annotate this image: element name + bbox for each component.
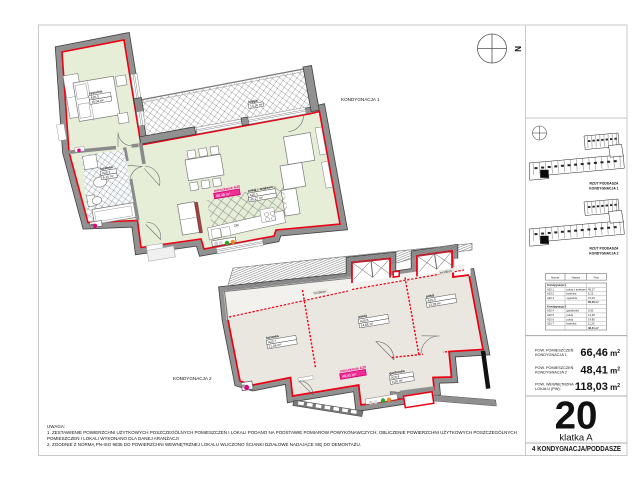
svg-text:66,46 m2: 66,46 m2 (580, 347, 620, 359)
svg-text:A20.3: A20.3 (547, 296, 555, 300)
svg-text:Kondygnacja 2: Kondygnacja 2 (547, 304, 567, 308)
svg-text:łazienka: łazienka (567, 292, 577, 296)
svg-text:KONDYGNACJA 1: KONDYGNACJA 1 (589, 186, 618, 190)
svg-text:11,26: 11,26 (588, 322, 595, 326)
svg-text:RZUT PODDASZA: RZUT PODDASZA (589, 247, 619, 251)
svg-text:45,27: 45,27 (588, 287, 595, 291)
svg-text:POW. POMIESZCZEŃ: POW. POMIESZCZEŃ (535, 366, 574, 370)
svg-text:Numer: Numer (551, 275, 559, 279)
svg-text:sypialnia: sypialnia (567, 296, 578, 300)
svg-text:garderoba: garderoba (567, 309, 580, 313)
svg-text:KONDYGNACJA 2: KONDYGNACJA 2 (173, 376, 212, 381)
svg-text:UWAGA:: UWAGA: (47, 424, 65, 429)
svg-text:13,28: 13,28 (588, 313, 595, 317)
svg-text:POW. WEWNĘTRZNA: POW. WEWNĘTRZNA (535, 383, 574, 387)
svg-text:6,15: 6,15 (588, 292, 594, 296)
svg-text:Kondygnacja 1: Kondygnacja 1 (547, 283, 567, 287)
svg-text:KONDYGNACJA 2: KONDYGNACJA 2 (535, 371, 567, 375)
svg-text:48,41 m2: 48,41 m2 (580, 365, 620, 377)
svg-text:A20.5: A20.5 (547, 313, 555, 317)
svg-text:N: N (513, 46, 522, 52)
svg-text:48,41 m²: 48,41 m² (588, 326, 599, 330)
svg-text:A20.4: A20.4 (547, 309, 555, 313)
svg-text:pokój: pokój (567, 313, 574, 317)
svg-text:klatka A: klatka A (559, 433, 593, 444)
svg-text:POW. POMIESZCZEŃ: POW. POMIESZCZEŃ (535, 349, 574, 353)
svg-text:ZM: ZM (234, 223, 240, 228)
svg-text:KONDYGNACJA 1: KONDYGNACJA 1 (535, 353, 567, 357)
svg-text:66,46 m²: 66,46 m² (588, 300, 599, 304)
svg-text:A20.7: A20.7 (547, 322, 555, 326)
svg-text:4 KONDYGNACJA/PODDASZE: 4 KONDYGNACJA/PODDASZE (532, 444, 621, 453)
svg-text:POMIESZCZEŃ I LOKALI WYKONANO: POMIESZCZEŃ I LOKALI WYKONANO DLA DANEJ … (47, 435, 179, 441)
svg-text:118,03 m2: 118,03 m2 (575, 381, 620, 393)
svg-text:KONDYGNACJA 2: KONDYGNACJA 2 (589, 251, 618, 255)
svg-text:15,04: 15,04 (588, 296, 595, 300)
svg-text:A20.2: A20.2 (547, 292, 555, 296)
svg-text:A20.1: A20.1 (547, 287, 555, 291)
svg-text:9,30: 9,30 (588, 309, 594, 313)
svg-text:Pow.: Pow. (594, 275, 600, 279)
svg-text:2. ZGODNIE Z NORMĄ PN-ISO 9836: 2. ZGODNIE Z NORMĄ PN-ISO 9836 DO POWIER… (47, 440, 361, 447)
svg-text:pokój z aneksem: pokój z aneksem (567, 287, 588, 291)
svg-text:14,85: 14,85 (588, 317, 595, 321)
svg-text:KONDYGNACJA 1: KONDYGNACJA 1 (341, 97, 380, 102)
svg-text:Nazwa: Nazwa (572, 275, 581, 279)
svg-text:LOKALU (PW):: LOKALU (PW): (535, 387, 561, 391)
svg-text:pokój: pokój (567, 317, 574, 321)
svg-text:1. ZESTAWIENIE POWIERZCHNI UŻY: 1. ZESTAWIENIE POWIERZCHNI UŻYTKOWYCH PO… (47, 429, 517, 435)
svg-text:łazienka: łazienka (567, 322, 577, 326)
svg-text:20: 20 (555, 395, 598, 438)
svg-text:RZUT PODDASZA: RZUT PODDASZA (589, 182, 619, 186)
svg-text:A20.6: A20.6 (547, 317, 555, 321)
